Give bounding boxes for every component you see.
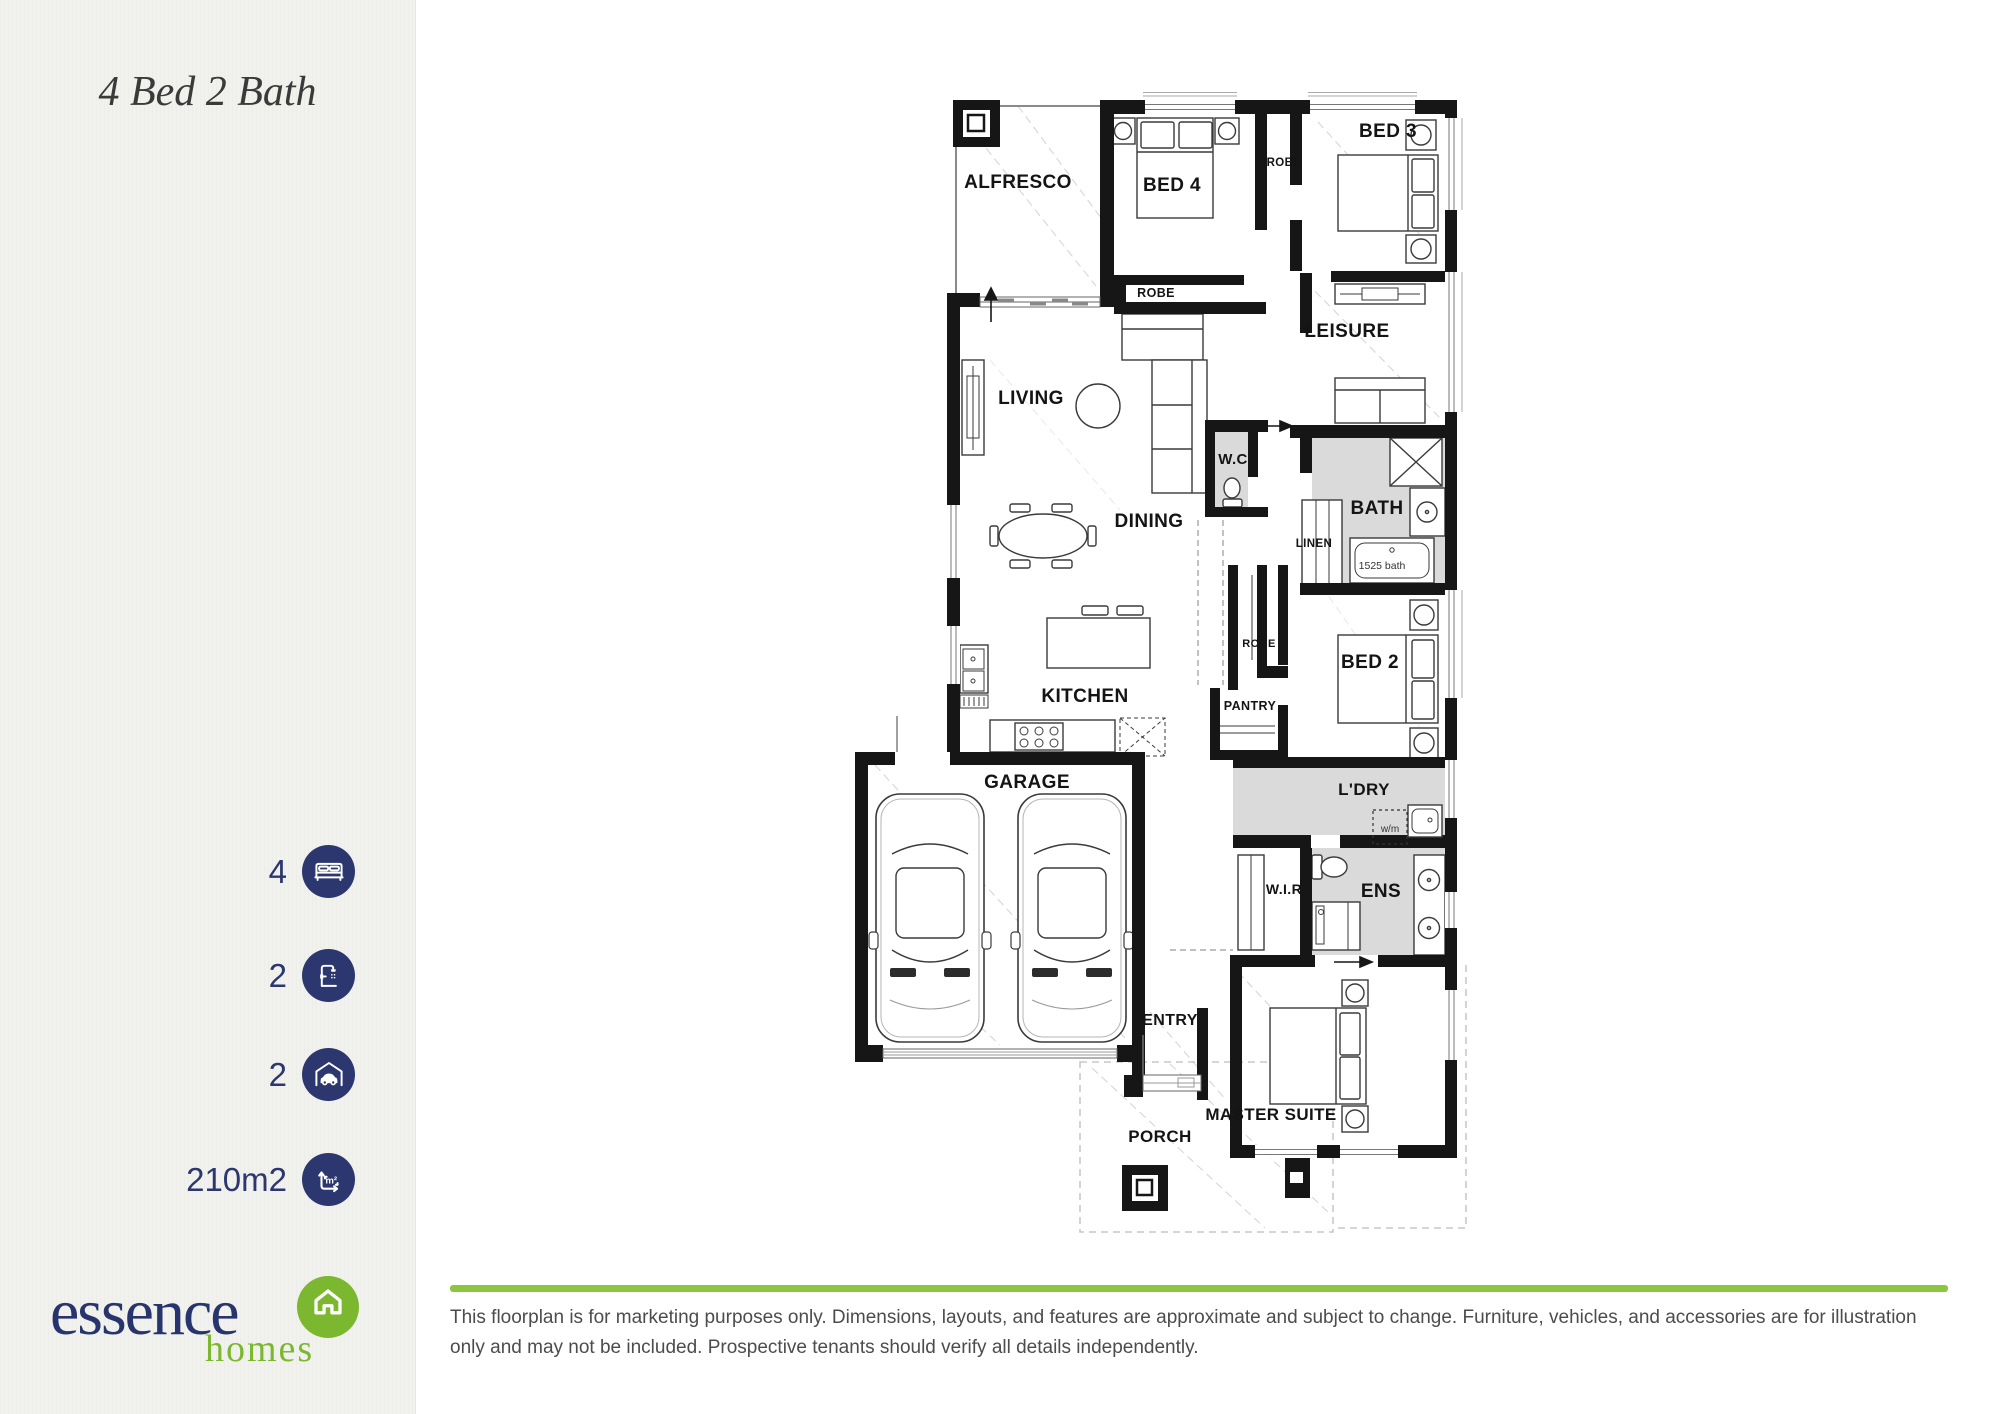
shower-icon	[302, 949, 355, 1002]
stat-garage: 2	[0, 1048, 415, 1101]
room-label-robe-bed4: ROBE	[1137, 286, 1175, 300]
room-label-wir: W.I.R	[1266, 881, 1302, 897]
room-label-bed2: BED 2	[1341, 652, 1399, 673]
room-label-living: LIVING	[998, 388, 1064, 409]
house-logo-icon	[297, 1276, 359, 1338]
garage-count: 2	[269, 1056, 287, 1094]
room-label-robe-top: ROBE	[1267, 157, 1302, 169]
washing-machine-label: w/m	[1380, 824, 1399, 835]
room-label-entry: ENTRY	[1142, 1012, 1198, 1029]
stat-area: 210m2 m²	[0, 1153, 415, 1206]
area-icon-glyph: m²	[325, 1175, 337, 1186]
garage-cars	[869, 794, 1133, 1042]
room-label-ens: ENS	[1361, 881, 1401, 902]
disclaimer-text: This floorplan is for marketing purposes…	[450, 1303, 1952, 1363]
sidebar: 4 Bed 2 Bath 4 2	[0, 0, 416, 1414]
page-title: 4 Bed 2 Bath	[0, 68, 415, 116]
room-label-dining: DINING	[1115, 511, 1184, 532]
room-label-pantry: PANTRY	[1224, 699, 1277, 713]
room-label-ldry: L'DRY	[1338, 780, 1390, 799]
bathroom-count: 2	[269, 957, 287, 995]
room-label-master: MASTER SUITE	[1205, 1105, 1336, 1124]
room-label-leisure: LEISURE	[1304, 321, 1389, 342]
bed-icon	[302, 845, 355, 898]
room-label-bed4: BED 4	[1143, 175, 1201, 196]
floorplan: ALFRESCO BED 4 BED 3 ROBE ROBE LEISURE L…	[700, 60, 1490, 1240]
room-label-robe-bed2: ROBE	[1242, 638, 1275, 650]
stat-bedrooms: 4	[0, 845, 415, 898]
room-label-linen: LINEN	[1296, 538, 1333, 550]
bedroom-count: 4	[269, 853, 287, 891]
footer-accent-bar	[450, 1285, 1948, 1292]
bath-size-label: 1525 bath	[1359, 560, 1406, 572]
stat-bathrooms: 2	[0, 949, 415, 1002]
room-label-kitchen: KITCHEN	[1041, 686, 1128, 707]
area-value: 210m2	[186, 1161, 287, 1199]
area-icon: m²	[302, 1153, 355, 1206]
hall-dashes	[1170, 520, 1233, 950]
room-label-alfresco: ALFRESCO	[964, 172, 1072, 193]
room-label-bed3: BED 3	[1359, 121, 1417, 142]
room-label-bath: BATH	[1351, 498, 1404, 519]
room-label-garage: GARAGE	[984, 772, 1070, 793]
room-label-porch: PORCH	[1128, 1127, 1191, 1146]
car-icon	[302, 1048, 355, 1101]
room-label-wc: W.C	[1218, 451, 1248, 468]
